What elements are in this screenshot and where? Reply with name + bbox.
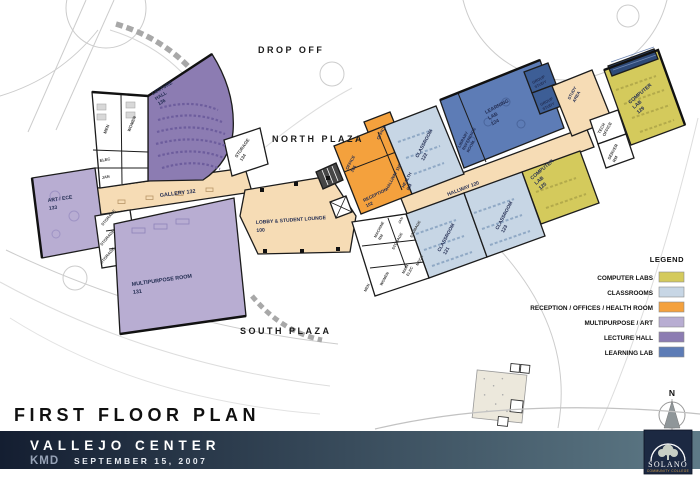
legend-swatch-reception xyxy=(659,302,684,312)
room-number: 100 xyxy=(256,227,265,234)
plan-date: SEPTEMBER 15, 2007 xyxy=(74,456,207,466)
drop-off-label: DROP OFF xyxy=(258,45,324,55)
legend-swatch-learning xyxy=(659,347,684,357)
north-plaza-label: NORTH PLAZA xyxy=(272,134,364,144)
floor-plan-sheet: LECTURE HALL 136 MEN WOMEN ELEC JAN STOR… xyxy=(0,0,700,482)
room-multipurpose-shape xyxy=(114,198,246,334)
site-planter xyxy=(320,62,344,86)
legend-swatch-classrooms xyxy=(659,287,684,297)
site-curve xyxy=(0,30,98,96)
banner-swoosh xyxy=(375,408,700,429)
logo-tagline: COMMUNITY COLLEGE xyxy=(647,469,689,473)
pad-surface xyxy=(472,370,527,423)
legend-label: LEARNING LAB xyxy=(605,350,654,357)
room-art-ece-shape xyxy=(32,168,105,258)
pad-bin xyxy=(520,365,530,374)
pad-bin xyxy=(510,363,520,372)
compass-needle xyxy=(664,401,680,428)
right-wing xyxy=(316,49,685,296)
room-name: MEN xyxy=(363,283,371,293)
room-lecture-hall-shape xyxy=(148,54,233,181)
legend-label: LECTURE HALL xyxy=(604,335,653,342)
north-label: N xyxy=(669,388,675,398)
firm-name: KMD xyxy=(30,455,59,467)
site-planter xyxy=(617,5,639,27)
pad-bin xyxy=(497,416,508,426)
north-arrow: N xyxy=(659,388,685,430)
pad-bin xyxy=(510,400,523,413)
legend-label: RECEPTION / OFFICES / HEALTH ROOM xyxy=(530,305,653,312)
legend-swatch-lecture xyxy=(659,332,684,342)
legend-swatch-computer-labs xyxy=(659,272,684,282)
site-equipment-pad xyxy=(472,360,530,428)
floor-plan-drawing: LECTURE HALL 136 MEN WOMEN ELEC JAN STOR… xyxy=(0,0,700,482)
legend-swatch-multipurpose xyxy=(659,317,684,327)
project-title: VALLEJO CENTER xyxy=(30,438,221,453)
legend-label: CLASSROOMS xyxy=(607,290,654,297)
site-circle xyxy=(66,0,146,48)
legend-label: COMPUTER LABS xyxy=(597,275,653,282)
site-road-line xyxy=(28,0,86,132)
room-men-e-label: MEN xyxy=(363,283,371,293)
legend-label: MULTIPURPOSE / ART xyxy=(584,320,653,327)
legend-title: LEGEND xyxy=(650,255,684,264)
room-number: 133 xyxy=(49,205,58,212)
site-planter xyxy=(63,266,87,290)
solano-logo: SOLANO COMMUNITY COLLEGE xyxy=(644,430,692,474)
room-number: 131 xyxy=(133,289,143,296)
logo-name: SOLANO xyxy=(648,460,688,469)
plan-title: FIRST FLOOR PLAN xyxy=(14,405,260,425)
south-plaza-label: SOUTH PLAZA xyxy=(240,326,332,336)
